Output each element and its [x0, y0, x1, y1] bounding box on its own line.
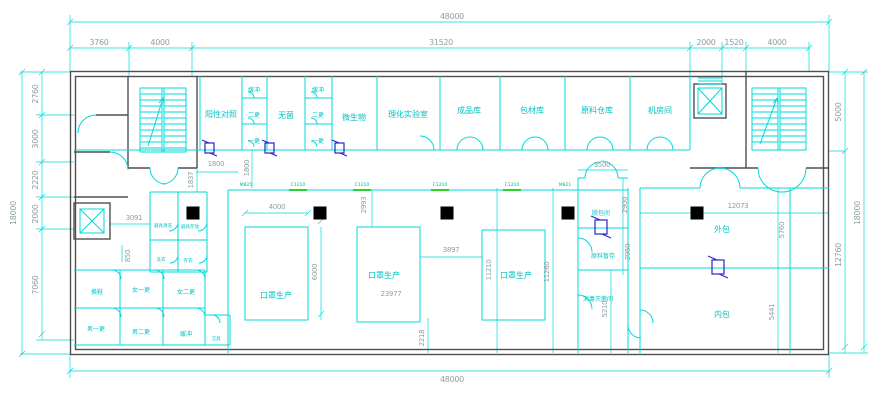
- room-label-raw-materials-warehouse: 原料仓库: [581, 105, 613, 115]
- room-label-outer-packaging: 外包: [714, 224, 730, 234]
- dim-top-3: 31520: [429, 38, 453, 47]
- dim-2950: 2950: [624, 244, 632, 261]
- room-label-physchem-lab: 理化实验室: [388, 109, 428, 119]
- pass-box-icon: [262, 140, 277, 156]
- room-label-mask-production-2: 口罩生产: [368, 270, 400, 280]
- dim-3500: 3500: [594, 161, 611, 169]
- room-label-men-first-change: 男一更: [87, 326, 105, 333]
- room-label-sterilization-room: 消毒灭菌间: [583, 295, 613, 303]
- room-label-garment-storage: 存衣: [184, 257, 193, 264]
- dim-left-2: 3000: [31, 129, 40, 148]
- dim-2218: 2218: [418, 330, 426, 347]
- tag-door-right: M821: [559, 182, 572, 188]
- dim-top-5: 1520: [724, 38, 743, 47]
- room-label-men-second-change: 男二更: [132, 329, 150, 336]
- room-label-women-second-change: 女二更: [177, 288, 195, 296]
- room-label-microbiology: 微生物: [342, 112, 366, 122]
- dim-6000: 6000: [311, 264, 319, 281]
- dimension-lines: [19, 15, 868, 378]
- dim-top-1: 3760: [89, 38, 108, 47]
- dim-right-overall: 18000: [853, 201, 862, 225]
- dim-5441: 5441: [768, 304, 776, 321]
- room-label-mask-production-3: 口罩生产: [500, 270, 532, 280]
- room-label-utensil-washing: 器具清洗: [154, 222, 172, 229]
- room-label-laundry: 洗衣: [157, 256, 166, 263]
- room-label-finished-goods: 成品库: [457, 105, 481, 115]
- pass-box-icon: [202, 140, 217, 156]
- dim-11260: 11260: [543, 262, 551, 283]
- tag-door-left: M825: [240, 182, 253, 188]
- stairs-left: [140, 88, 186, 152]
- room-label-positive-control: 阳性对照: [205, 109, 237, 119]
- tag-window-3: C1210: [433, 182, 448, 188]
- room-label-mask-production-1: 口罩生产: [260, 290, 292, 300]
- dim-overall-top: 48000: [440, 12, 464, 21]
- dim-11210: 11210: [485, 260, 493, 281]
- dim-1800-h: 1800: [208, 160, 225, 168]
- room-label-first-change-b: 一更: [312, 138, 324, 145]
- tag-window-2: C1210: [355, 182, 370, 188]
- room-label-inner-packaging: 内包: [714, 309, 730, 319]
- dim-left-3: 2220: [31, 170, 40, 189]
- dim-12073: 12073: [728, 202, 749, 210]
- dim-right-1: 5000: [834, 102, 843, 121]
- dim-2993: 2993: [360, 197, 368, 214]
- dim-right-2: 12760: [834, 243, 843, 267]
- room-label-buffer-b: 缓冲: [312, 86, 324, 94]
- room-label-unpacking-room: 脱包间: [592, 209, 610, 217]
- dim-5210: 5210: [601, 301, 609, 318]
- dim-1800-v: 1800: [243, 160, 251, 177]
- pass-box-icon: [708, 256, 728, 278]
- dim-1837: 1837: [187, 172, 195, 189]
- room-label-packaging-materials: 包材库: [520, 105, 544, 115]
- dim-top-2: 4000: [150, 38, 169, 47]
- room-label-raw-material-staging: 原料暂存: [591, 252, 615, 260]
- dim-850: 850: [124, 250, 132, 262]
- dim-overall-bottom: 48000: [440, 375, 464, 384]
- pass-box-icon: [332, 140, 347, 156]
- room-label-second-change-a: 二更: [248, 112, 260, 119]
- room-label-utensil-storage: 器具存放: [181, 223, 199, 230]
- tag-window-1: C1210: [291, 182, 306, 188]
- elevator-left-icon: [80, 209, 104, 233]
- room-label-first-change-a: 一更: [248, 138, 260, 145]
- dim-left-1: 2760: [31, 84, 40, 103]
- floor-plan-drawing: 48000 3760 4000 31520 2000 1520 4000 480…: [0, 0, 890, 408]
- dim-top-6: 4000: [767, 38, 786, 47]
- tag-window-4: C1210: [505, 182, 520, 188]
- room-label-women-first-change: 女一更: [132, 286, 150, 294]
- room-label-shoe-change: 换鞋: [91, 288, 103, 296]
- dim-2900: 2900: [621, 197, 629, 214]
- stairs-right: [752, 88, 806, 150]
- room-label-sterile: 无菌: [278, 110, 294, 120]
- dim-left-overall: 18000: [9, 201, 18, 225]
- dim-3091: 3091: [126, 214, 143, 222]
- dim-left-5: 7060: [31, 275, 40, 294]
- room-label-machine-room: 机房间: [648, 105, 672, 115]
- dim-23977: 23977: [381, 290, 402, 298]
- dim-3897: 3897: [443, 246, 460, 254]
- room-label-second-change-b: 二更: [312, 112, 324, 119]
- room-label-cleaning-tools: 洁具: [212, 335, 221, 342]
- dim-4000: 4000: [269, 203, 286, 211]
- opening-tags: M825 C1210 C1210 C1210 C1210 M821: [240, 182, 572, 188]
- room-label-buffer-a: 缓冲: [248, 86, 260, 94]
- room-label-buffer-c: 缓冲: [180, 330, 192, 338]
- pass-box-icon: [591, 216, 611, 238]
- dim-left-4: 2000: [31, 204, 40, 223]
- dim-5760: 5760: [778, 222, 786, 239]
- cad-floor-plan: 48000 3760 4000 31520 2000 1520 4000 480…: [0, 0, 890, 408]
- dim-top-4: 2000: [696, 38, 715, 47]
